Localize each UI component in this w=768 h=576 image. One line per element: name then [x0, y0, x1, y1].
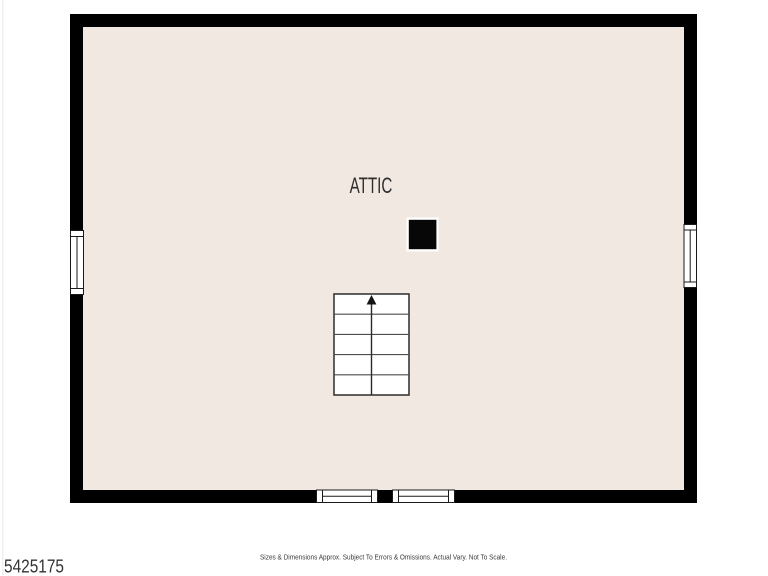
svg-text:Sizes & Dimensions Approx. Sub: Sizes & Dimensions Approx. Subject To Er… [260, 553, 507, 562]
svg-text:5425175: 5425175 [4, 556, 64, 576]
svg-text:ATTIC: ATTIC [350, 173, 393, 198]
